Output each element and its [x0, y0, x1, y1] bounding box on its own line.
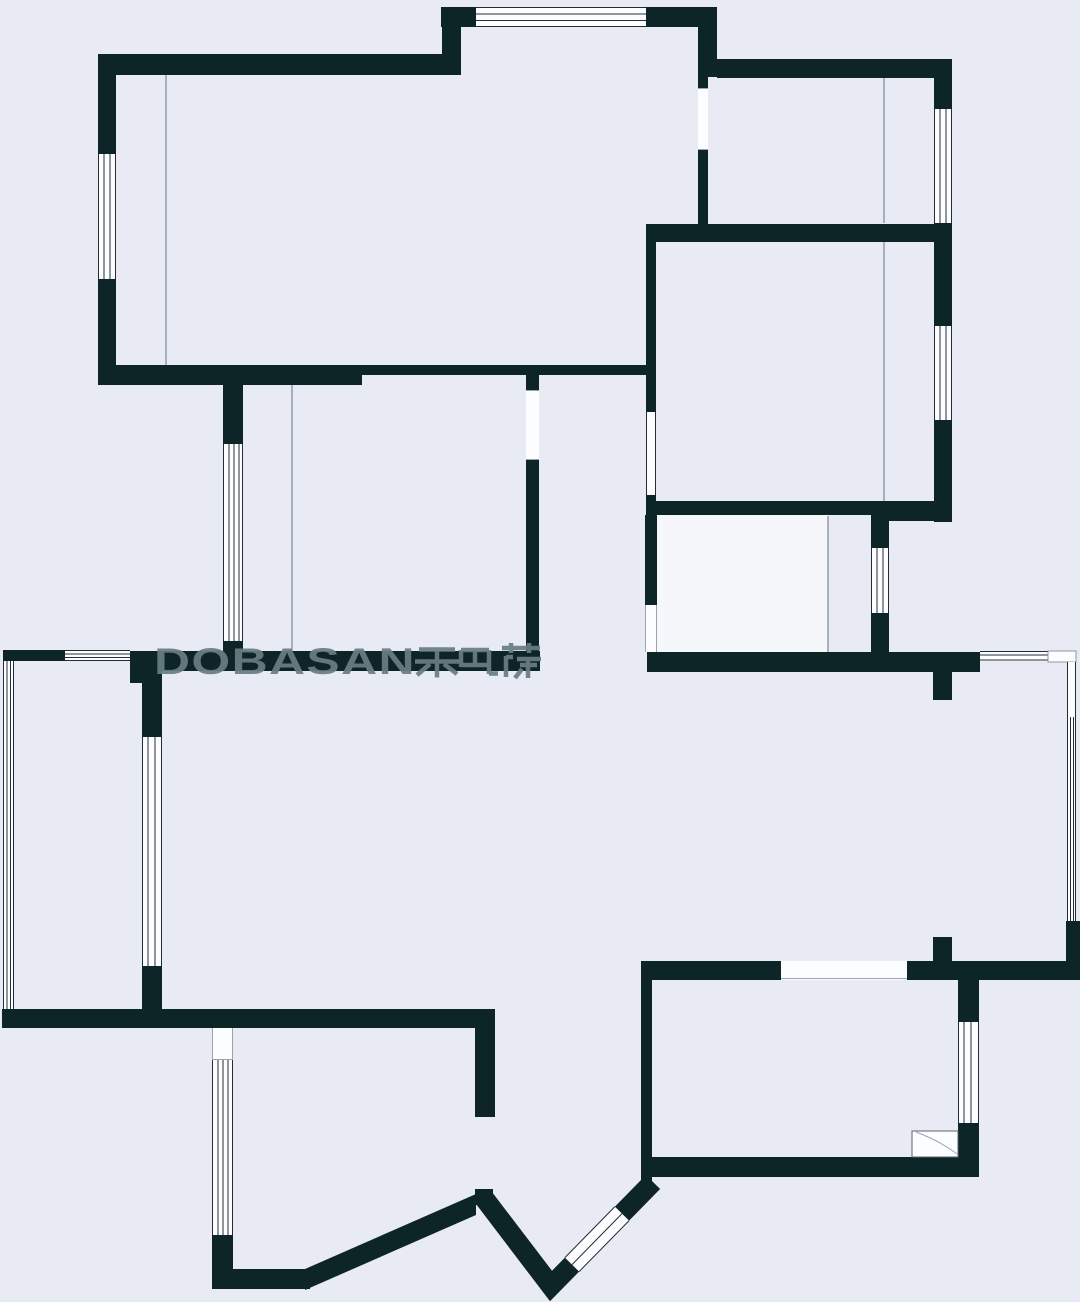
svg-text:DOBASAN: DOBASAN — [154, 641, 416, 682]
